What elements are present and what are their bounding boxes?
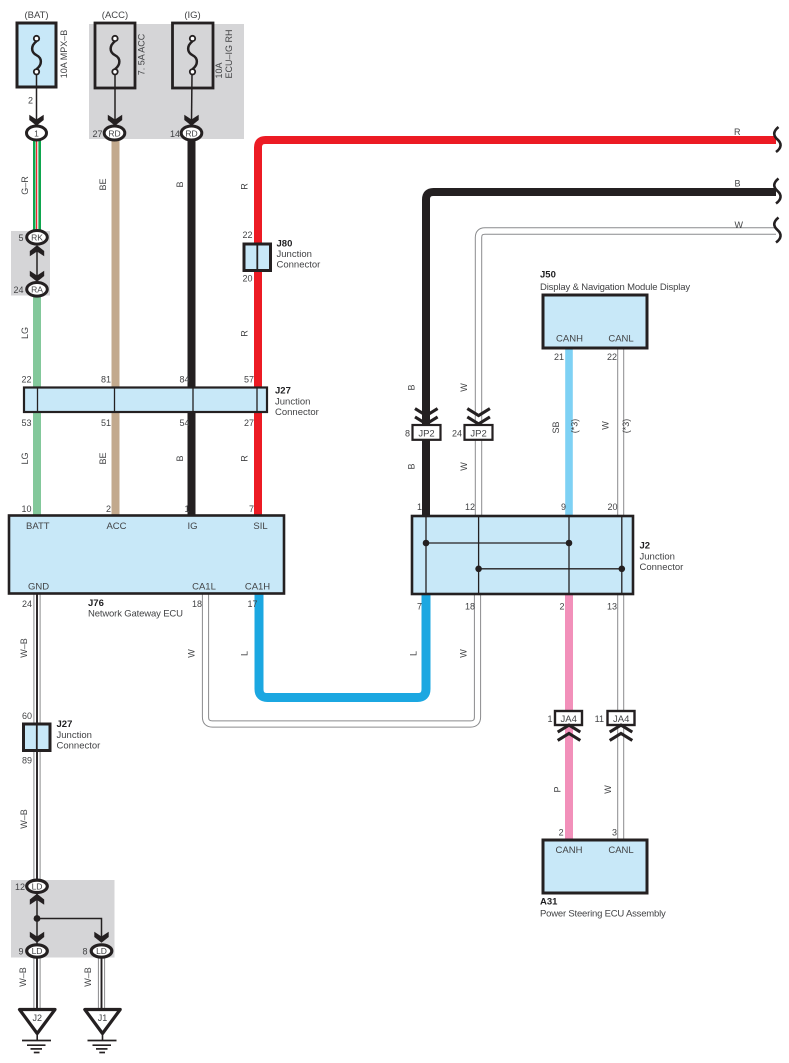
svg-text:2: 2 xyxy=(559,828,564,838)
svg-text:ECU–IG RH: ECU–IG RH xyxy=(224,29,234,78)
svg-text:J1: J1 xyxy=(98,1013,108,1023)
svg-text:12: 12 xyxy=(465,502,475,512)
svg-text:24: 24 xyxy=(452,429,462,439)
svg-text:60: 60 xyxy=(22,711,32,721)
svg-text:B: B xyxy=(175,181,185,187)
svg-text:B: B xyxy=(175,455,185,461)
svg-text:14: 14 xyxy=(170,129,180,139)
svg-text:LD: LD xyxy=(32,882,43,892)
svg-text:CANL: CANL xyxy=(608,845,633,856)
svg-text:W–B: W–B xyxy=(83,967,93,987)
svg-text:JA4: JA4 xyxy=(613,714,629,725)
svg-text:Junction: Junction xyxy=(57,730,92,741)
svg-text:W: W xyxy=(459,649,469,658)
svg-text:5: 5 xyxy=(18,233,23,243)
svg-text:J27: J27 xyxy=(275,386,291,397)
svg-text:18: 18 xyxy=(465,601,475,611)
svg-text:Power Steering ECU Assembly: Power Steering ECU Assembly xyxy=(540,909,666,920)
svg-text:W: W xyxy=(603,785,613,794)
svg-text:84: 84 xyxy=(179,375,189,385)
svg-text:R: R xyxy=(734,127,741,137)
svg-text:W: W xyxy=(459,383,469,392)
svg-text:LG: LG xyxy=(20,452,30,464)
svg-text:27: 27 xyxy=(244,418,254,428)
svg-text:9: 9 xyxy=(561,502,566,512)
svg-text:R: R xyxy=(240,183,250,190)
svg-text:ACC: ACC xyxy=(106,521,126,532)
svg-text:2: 2 xyxy=(106,504,111,514)
svg-text:22: 22 xyxy=(607,352,617,362)
svg-text:10A MPX–B: 10A MPX–B xyxy=(59,30,69,79)
svg-text:W: W xyxy=(601,421,611,430)
svg-text:BATT: BATT xyxy=(26,521,50,532)
svg-text:Junction: Junction xyxy=(277,249,312,260)
svg-text:B: B xyxy=(407,463,417,469)
svg-text:10: 10 xyxy=(21,504,31,514)
svg-text:13: 13 xyxy=(607,601,617,611)
svg-text:SB: SB xyxy=(551,421,561,433)
svg-text:(*3): (*3) xyxy=(570,419,580,434)
svg-text:B: B xyxy=(735,178,741,188)
svg-text:B: B xyxy=(407,384,417,390)
svg-text:RD: RD xyxy=(108,128,120,138)
svg-text:LD: LD xyxy=(96,946,107,956)
svg-text:(*3): (*3) xyxy=(621,419,631,434)
svg-text:Junction: Junction xyxy=(640,552,675,563)
svg-text:53: 53 xyxy=(21,418,31,428)
svg-text:J27: J27 xyxy=(57,719,73,730)
svg-text:W–B: W–B xyxy=(19,638,29,658)
svg-text:2: 2 xyxy=(28,96,33,106)
svg-text:SIL: SIL xyxy=(253,521,267,532)
svg-text:8: 8 xyxy=(82,947,87,957)
svg-text:20: 20 xyxy=(242,273,252,283)
svg-text:W: W xyxy=(187,649,197,658)
svg-text:81: 81 xyxy=(101,375,111,385)
svg-text:22: 22 xyxy=(242,230,252,240)
svg-text:11: 11 xyxy=(595,714,604,724)
svg-text:L: L xyxy=(409,651,419,656)
svg-text:J2: J2 xyxy=(640,541,651,552)
svg-text:24: 24 xyxy=(13,285,23,295)
svg-text:RA: RA xyxy=(31,285,43,295)
svg-text:(ACC): (ACC) xyxy=(102,10,128,21)
svg-text:(BAT): (BAT) xyxy=(24,10,48,21)
svg-text:Junction: Junction xyxy=(275,397,310,408)
svg-text:24: 24 xyxy=(22,599,32,609)
svg-text:R: R xyxy=(240,455,250,462)
svg-text:57: 57 xyxy=(244,375,254,385)
svg-text:P: P xyxy=(553,786,563,792)
svg-text:J50: J50 xyxy=(540,270,556,281)
svg-text:(IG): (IG) xyxy=(184,10,200,21)
svg-text:W: W xyxy=(735,220,744,230)
svg-text:Display & Navigation Module Di: Display & Navigation Module Display xyxy=(540,282,690,293)
svg-text:A31: A31 xyxy=(540,897,558,908)
svg-text:W–B: W–B xyxy=(19,809,29,829)
svg-text:JP2: JP2 xyxy=(418,429,434,440)
svg-text:89: 89 xyxy=(22,755,32,765)
svg-text:17: 17 xyxy=(247,599,257,609)
svg-text:J2: J2 xyxy=(32,1013,42,1023)
svg-text:1: 1 xyxy=(34,128,39,138)
svg-text:BE: BE xyxy=(98,452,108,464)
svg-text:L: L xyxy=(240,651,250,656)
svg-text:R: R xyxy=(240,330,250,337)
svg-text:BE: BE xyxy=(98,178,108,190)
svg-text:Network Gateway ECU: Network Gateway ECU xyxy=(88,609,183,620)
svg-text:RK: RK xyxy=(31,233,43,243)
svg-text:GND: GND xyxy=(28,582,49,593)
svg-text:7: 7 xyxy=(417,601,422,611)
svg-text:21: 21 xyxy=(554,352,564,362)
svg-text:Connector: Connector xyxy=(57,741,101,752)
svg-text:9: 9 xyxy=(18,947,23,957)
svg-text:22: 22 xyxy=(21,375,31,385)
svg-text:18: 18 xyxy=(192,599,202,609)
svg-text:LD: LD xyxy=(32,946,43,956)
svg-text:RD: RD xyxy=(185,128,197,138)
svg-text:51: 51 xyxy=(101,418,111,428)
svg-text:CANH: CANH xyxy=(556,845,583,856)
svg-text:JA4: JA4 xyxy=(561,714,577,725)
svg-text:1: 1 xyxy=(184,504,189,514)
svg-text:1: 1 xyxy=(547,714,552,724)
svg-text:CANH: CANH xyxy=(556,334,583,345)
svg-text:Connector: Connector xyxy=(275,407,319,418)
svg-text:8: 8 xyxy=(405,429,410,439)
svg-text:Connector: Connector xyxy=(640,562,684,573)
svg-text:Connector: Connector xyxy=(277,260,321,271)
svg-text:27: 27 xyxy=(92,129,102,139)
svg-text:IG: IG xyxy=(187,521,197,532)
svg-text:JP2: JP2 xyxy=(470,429,486,440)
svg-text:12: 12 xyxy=(15,882,25,892)
svg-text:7. 5A ACC: 7. 5A ACC xyxy=(137,33,147,75)
svg-text:W–B: W–B xyxy=(18,967,28,987)
svg-text:1: 1 xyxy=(417,502,422,512)
svg-text:54: 54 xyxy=(179,418,189,428)
svg-text:W: W xyxy=(459,462,469,471)
svg-text:CANL: CANL xyxy=(608,334,633,345)
svg-text:J80: J80 xyxy=(277,239,293,250)
svg-text:7: 7 xyxy=(249,504,254,514)
svg-text:20: 20 xyxy=(607,502,617,512)
svg-text:J76: J76 xyxy=(88,598,104,609)
svg-text:G–R: G–R xyxy=(20,176,30,195)
svg-text:10A: 10A xyxy=(214,62,224,78)
svg-text:2: 2 xyxy=(559,601,564,611)
svg-text:LG: LG xyxy=(20,327,30,339)
svg-text:3: 3 xyxy=(612,828,617,838)
svg-text:CA1L: CA1L xyxy=(192,582,216,593)
svg-text:CA1H: CA1H xyxy=(245,582,270,593)
